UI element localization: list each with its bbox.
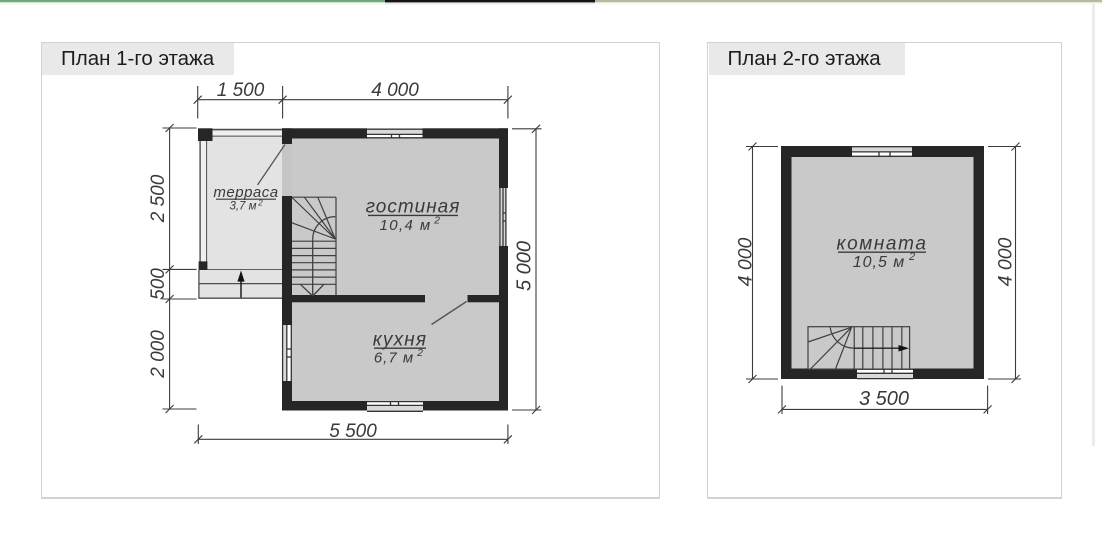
svg-text:4 000: 4 000: [995, 237, 1017, 286]
svg-text:1 500: 1 500: [217, 80, 265, 101]
svg-text:гостиная: гостиная: [366, 197, 461, 218]
svg-text:2: 2: [257, 199, 263, 208]
svg-text:10,4 м: 10,4 м: [379, 217, 431, 234]
svg-text:2: 2: [908, 251, 915, 263]
svg-text:2 000: 2 000: [148, 330, 169, 379]
svg-text:5 000: 5 000: [514, 241, 536, 291]
svg-text:6,7 м: 6,7 м: [374, 349, 414, 366]
svg-text:2: 2: [433, 215, 440, 227]
svg-text:2: 2: [416, 347, 423, 359]
svg-text:5 500: 5 500: [329, 421, 377, 442]
svg-text:4 000: 4 000: [371, 80, 419, 101]
svg-text:3,7 м: 3,7 м: [229, 201, 256, 213]
svg-text:4 000: 4 000: [735, 237, 757, 286]
svg-text:500: 500: [148, 268, 169, 300]
svg-text:3 500: 3 500: [859, 388, 909, 410]
svg-text:10,5 м: 10,5 м: [853, 254, 906, 271]
svg-text:2 500: 2 500: [148, 174, 169, 223]
svg-text:терраса: терраса: [213, 184, 278, 201]
